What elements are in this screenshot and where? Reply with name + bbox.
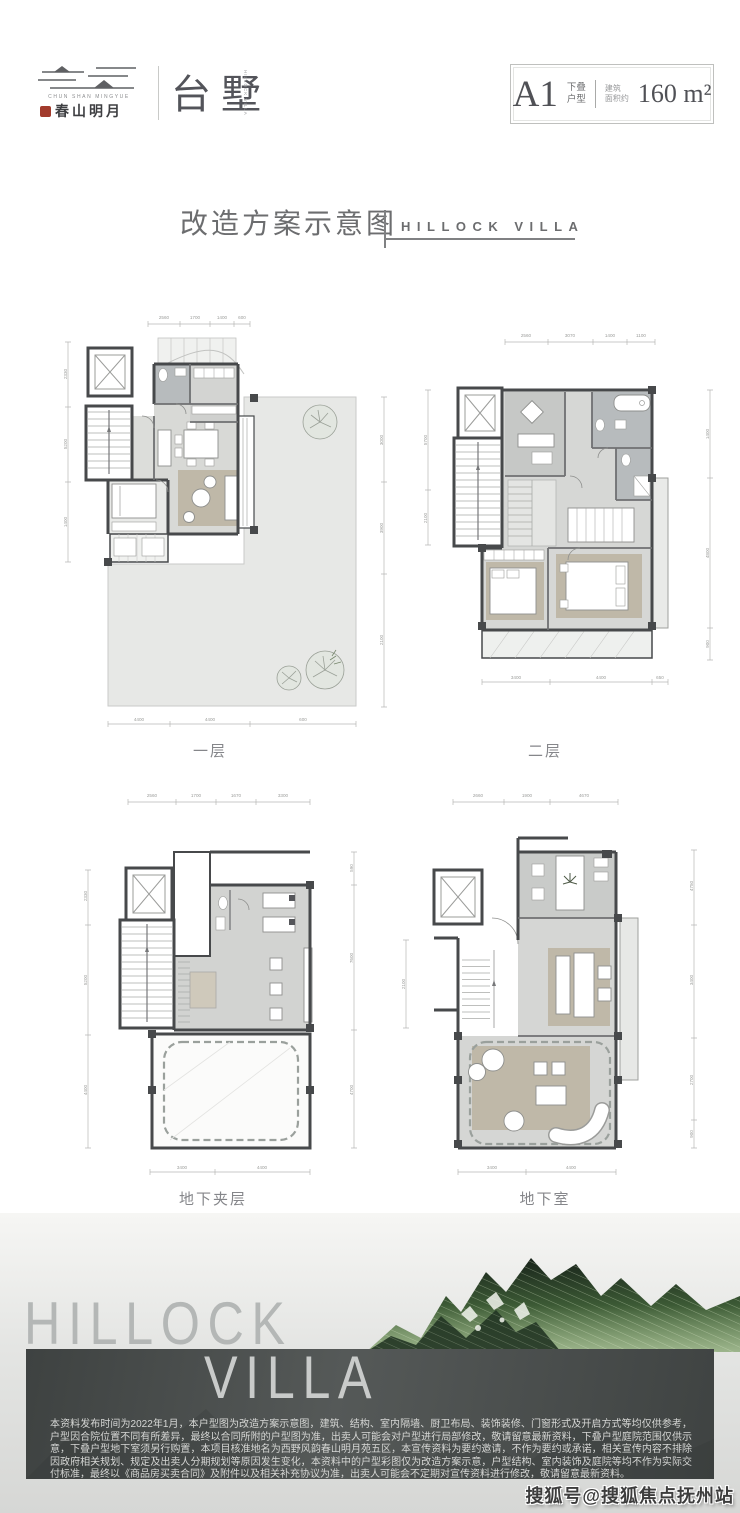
- elevator-shaft: [434, 870, 482, 924]
- plan-label-first-floor: 一层: [155, 740, 265, 761]
- logo-chinese: 春山明月: [40, 101, 145, 121]
- svg-text:2560: 2560: [147, 793, 158, 798]
- svg-text:5700: 5700: [423, 434, 428, 445]
- svg-text:4400: 4400: [205, 717, 216, 722]
- svg-text:600: 600: [299, 717, 307, 722]
- svg-text:4400: 4400: [257, 1165, 268, 1170]
- title-vertical-rule: [384, 210, 386, 248]
- svg-text:1400: 1400: [705, 428, 710, 439]
- plan-label-second-floor: 二层: [490, 740, 600, 761]
- title-horizontal-rule: [385, 238, 575, 240]
- svg-text:4400: 4400: [596, 675, 607, 680]
- section-title-en: HILLOCK VILLA: [401, 219, 584, 234]
- section-title-cn: 改造方案示意图: [180, 202, 397, 242]
- unit-badge: A1 下叠 户型 建筑 面积约 160 m²: [510, 64, 714, 124]
- svg-text:4750: 4750: [689, 880, 694, 891]
- lower-room: [152, 1034, 310, 1148]
- brand-name: 台墅: [171, 62, 271, 120]
- logo-english-text: CHUN SHAN MINGYUE: [30, 94, 148, 100]
- unit-code: A1: [513, 73, 558, 116]
- watermark-text: 搜狐号@搜狐焦点抚州站: [525, 1482, 734, 1508]
- svg-text:3300: 3300: [278, 793, 289, 798]
- svg-text:2700: 2700: [689, 1074, 694, 1085]
- svg-text:4800: 4800: [705, 547, 710, 558]
- header-divider: [158, 66, 159, 120]
- svg-text:4400: 4400: [566, 1165, 577, 1170]
- plan-label-basement-mezzanine: 地下夹层: [158, 1188, 268, 1209]
- elevator-shaft: [458, 388, 502, 438]
- disclaimer-text: 本资料发布时间为2022年1月，本户型图为改造方案示意图，建筑、结构、室内隔墙、…: [50, 1419, 692, 1482]
- window-bay: [238, 416, 254, 528]
- area-label-line2: 面积约: [605, 94, 629, 104]
- svg-text:900: 900: [705, 640, 710, 648]
- brand-subtitle: HILLOCK VILLA: [243, 70, 248, 116]
- poster-page: CHUN SHAN MINGYUE 春山明月 台墅 HILLOCK VILLA …: [0, 0, 740, 1513]
- elevator-shaft: [88, 348, 132, 396]
- svg-text:2100: 2100: [423, 512, 428, 523]
- svg-text:3000: 3000: [379, 434, 384, 445]
- svg-text:2100: 2100: [379, 634, 384, 645]
- svg-text:900: 900: [689, 1130, 694, 1138]
- svg-text:4670: 4670: [579, 793, 590, 798]
- svg-text:3400: 3400: [689, 974, 694, 985]
- svg-text:3900: 3900: [379, 522, 384, 533]
- svg-text:1670: 1670: [231, 793, 242, 798]
- mountain-artwork: [366, 1250, 740, 1352]
- svg-text:1900: 1900: [522, 793, 533, 798]
- svg-text:3400: 3400: [177, 1165, 188, 1170]
- unit-type-line2: 户型: [567, 94, 586, 106]
- svg-text:2100: 2100: [401, 978, 406, 989]
- svg-text:3400: 3400: [511, 675, 522, 680]
- unit-type-line1: 下叠: [567, 82, 586, 94]
- entry-hall: [132, 416, 154, 480]
- staircase: [458, 918, 518, 1036]
- mountain-logo-icon: [36, 62, 142, 92]
- svg-text:2660: 2660: [473, 793, 484, 798]
- elevator-shaft: [126, 868, 172, 920]
- svg-text:600: 600: [238, 315, 246, 320]
- svg-text:5200: 5200: [63, 438, 68, 449]
- storage-room: [174, 852, 210, 956]
- svg-text:1700: 1700: [190, 315, 201, 320]
- svg-text:2560: 2560: [159, 315, 170, 320]
- svg-text:650: 650: [656, 675, 664, 680]
- badge-separator: [595, 80, 596, 108]
- floor-plan-basement: 2660 1900 4670 2100 4750 3400 2700 900 3…: [398, 790, 702, 1182]
- svg-text:1100: 1100: [636, 333, 646, 338]
- floor-plan-basement-mezzanine: 2560 1700 1670 3300 2330 5200 4400 590 7…: [80, 790, 362, 1182]
- area-value: 160 m²: [638, 79, 712, 109]
- staircase: [454, 438, 502, 546]
- bottom-balcony: [482, 630, 652, 658]
- staircase: [86, 406, 132, 480]
- floor-plan-first-floor: 2560 1700 1400 600 2330 5200 1400 3000 3…: [58, 312, 392, 736]
- red-seal-icon: [40, 106, 51, 117]
- light-well: [620, 918, 638, 1080]
- svg-text:5200: 5200: [83, 974, 88, 985]
- svg-text:2330: 2330: [63, 368, 68, 379]
- logo-chinese-text: 春山明月: [55, 101, 123, 121]
- svg-text:4400: 4400: [83, 1084, 88, 1095]
- plan-label-basement: 地下室: [490, 1188, 600, 1209]
- area-label-line1: 建筑: [605, 84, 629, 94]
- svg-text:1400: 1400: [217, 315, 228, 320]
- floor-plan-second-floor: 2560 3070 1400 1100 5700 2100 1400 4800 …: [420, 330, 718, 692]
- furniture-bar-room: [548, 948, 611, 1026]
- staircase: [120, 920, 174, 1028]
- svg-text:3070: 3070: [565, 333, 576, 338]
- svg-text:7600: 7600: [349, 952, 354, 963]
- svg-text:4400: 4400: [134, 717, 145, 722]
- svg-text:2560: 2560: [521, 333, 532, 338]
- furniture-family-room: [469, 1042, 611, 1144]
- svg-text:4700: 4700: [349, 1084, 354, 1095]
- side-balcony: [652, 478, 668, 628]
- svg-text:590: 590: [349, 864, 354, 872]
- svg-text:2330: 2330: [83, 890, 88, 901]
- stair-void: [508, 480, 556, 546]
- svg-text:1400: 1400: [605, 333, 616, 338]
- svg-text:1400: 1400: [63, 516, 68, 527]
- balcony: [110, 534, 168, 562]
- footer-big-text-villa: VILLA: [204, 1348, 379, 1408]
- svg-text:1700: 1700: [191, 793, 202, 798]
- svg-text:3400: 3400: [487, 1165, 498, 1170]
